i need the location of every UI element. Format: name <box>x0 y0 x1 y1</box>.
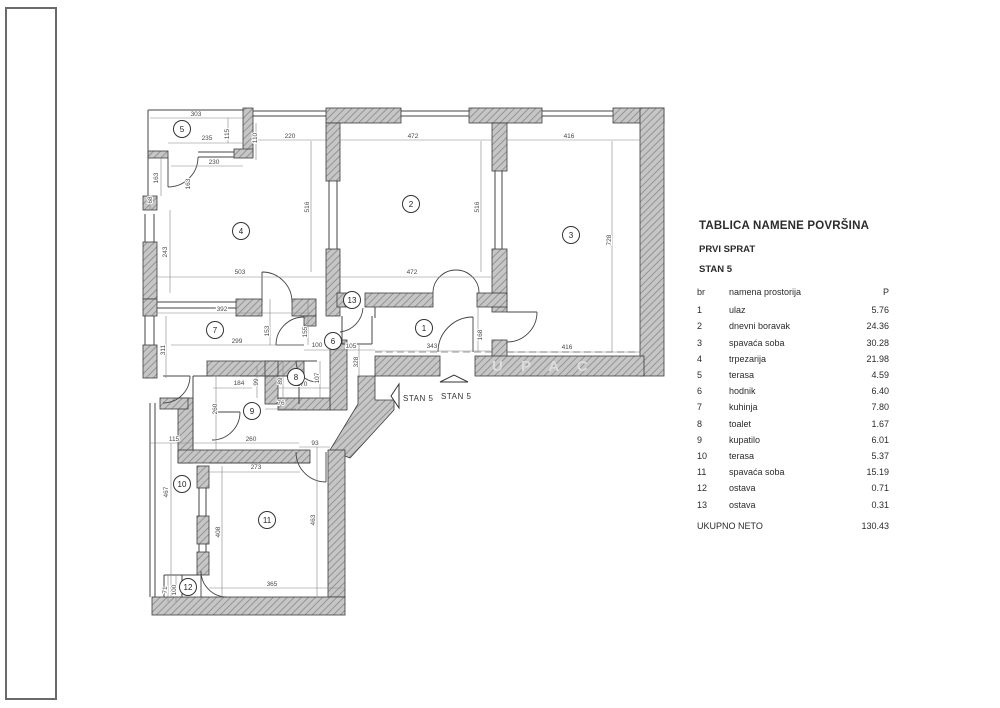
room-number-text: 10 <box>178 480 187 489</box>
dimension-label: 516 <box>474 201 481 212</box>
room-number-text: 12 <box>184 583 193 592</box>
table-row: 1ulaz5.76 <box>697 302 889 318</box>
row-name: ulaz <box>729 302 845 318</box>
row-area: 7.80 <box>845 399 889 415</box>
dimension-label: 168 <box>477 329 484 340</box>
table-row: 5terasa4.59 <box>697 367 889 383</box>
dimension-labels: 3032351151102202301631636824350351647241… <box>147 111 613 595</box>
table-row: 12ostava0.71 <box>697 480 889 496</box>
thin-lines-windows <box>145 110 613 597</box>
row-br: 6 <box>697 383 729 399</box>
row-name: kuhinja <box>729 399 845 415</box>
row-name: ostava <box>729 497 845 513</box>
row-area: 1.67 <box>845 416 889 432</box>
row-area: 5.76 <box>845 302 889 318</box>
dimension-label: 260 <box>212 403 219 414</box>
total-value: 130.43 <box>845 518 889 534</box>
dimension-label: 463 <box>310 514 317 525</box>
dimension-label: 343 <box>427 343 438 350</box>
table-floor-label: PRVI SPRAT <box>699 244 889 255</box>
dimension-label: 99 <box>253 378 260 386</box>
dimension-label: 107 <box>314 372 321 383</box>
dimension-label: 155 <box>302 326 309 337</box>
dimension-label: 220 <box>285 133 296 140</box>
table-row: 4trpezarija21.98 <box>697 351 889 367</box>
dimension-label: 76 <box>277 400 285 407</box>
row-area: 21.98 <box>845 351 889 367</box>
room-number: 10 <box>174 476 191 493</box>
dimension-label: 467 <box>163 486 170 497</box>
row-name: toalet <box>729 416 845 432</box>
dimension-label: 416 <box>564 133 575 140</box>
row-area: 0.71 <box>845 480 889 496</box>
row-name: kupatilo <box>729 432 845 448</box>
room-number: 5 <box>174 121 191 138</box>
room-number-text: 2 <box>409 200 414 209</box>
dimension-label: 68 <box>147 196 154 204</box>
table-row: 3spavaća soba30.28 <box>697 335 889 351</box>
table-row: 11spavaća soba15.19 <box>697 464 889 480</box>
watermark-text: U P A C <box>492 358 595 375</box>
row-br: 12 <box>697 480 729 496</box>
table-row: 8toalet1.67 <box>697 416 889 432</box>
row-area: 15.19 <box>845 464 889 480</box>
dimension-label: 416 <box>562 344 573 351</box>
row-br: 8 <box>697 416 729 432</box>
dimension-label: 163 <box>153 172 160 183</box>
row-br: 10 <box>697 448 729 464</box>
row-br: 4 <box>697 351 729 367</box>
room-number: 2 <box>403 196 420 213</box>
dimension-label: 105 <box>346 343 357 350</box>
dimension-label: 365 <box>267 581 278 588</box>
dimension-label: 516 <box>304 201 311 212</box>
dimension-label: 328 <box>353 356 360 367</box>
row-br: 9 <box>697 432 729 448</box>
area-table: TABLICA NAMENE POVRŠINA PRVI SPRAT STAN … <box>697 220 889 534</box>
row-name: terasa <box>729 367 845 383</box>
row-area: 0.31 <box>845 497 889 513</box>
dimension-label: 243 <box>162 246 169 257</box>
watermark: U P A C <box>492 358 595 375</box>
room-number: 7 <box>207 322 224 339</box>
room-number-text: 9 <box>250 407 255 416</box>
row-name: ostava <box>729 480 845 496</box>
row-br: 13 <box>697 497 729 513</box>
dimension-label: 71 <box>162 586 169 594</box>
room-number-text: 1 <box>422 324 427 333</box>
table-row: 9kupatilo6.01 <box>697 432 889 448</box>
dimension-label: 503 <box>235 269 246 276</box>
row-area: 24.36 <box>845 318 889 334</box>
room-number-text: 7 <box>213 326 218 335</box>
row-name: spavaća soba <box>729 335 845 351</box>
row-br: 5 <box>697 367 729 383</box>
table-row: 6hodnik6.40 <box>697 383 889 399</box>
room-number-text: 11 <box>263 516 272 525</box>
dimension-label: 392 <box>217 306 228 313</box>
table-header-row: br namena prostorija P <box>697 284 889 300</box>
room-number-text: 6 <box>331 337 336 346</box>
entrance-labels: STAN 5STAN 5 <box>391 375 471 408</box>
dimension-label: 472 <box>408 133 419 140</box>
entrance-label: STAN 5 <box>391 384 433 408</box>
dimension-label: 163 <box>185 178 192 189</box>
entrance-label: STAN 5 <box>440 375 471 401</box>
dimension-label: 115 <box>169 436 180 443</box>
dimension-label: 408 <box>215 526 222 537</box>
row-area: 30.28 <box>845 335 889 351</box>
row-br: 2 <box>697 318 729 334</box>
row-br: 11 <box>697 464 729 480</box>
col-header-br: br <box>697 284 729 300</box>
dimension-label: 260 <box>246 436 257 443</box>
row-name: trpezarija <box>729 351 845 367</box>
col-header-name: namena prostorija <box>729 284 845 300</box>
room-number: 8 <box>288 369 305 386</box>
up-arrow-icon <box>440 375 468 382</box>
table-row: 7kuhinja7.80 <box>697 399 889 415</box>
room-number: 12 <box>180 579 197 596</box>
room-number: 9 <box>244 403 261 420</box>
row-area: 4.59 <box>845 367 889 383</box>
entrance-label-text: STAN 5 <box>441 392 471 401</box>
dimension-label: 303 <box>191 111 202 118</box>
row-name: terasa <box>729 448 845 464</box>
row-area: 6.40 <box>845 383 889 399</box>
col-header-area: P <box>845 284 889 300</box>
room-number-text: 13 <box>348 296 357 305</box>
room-number: 4 <box>233 223 250 240</box>
dimension-label: 110 <box>252 132 259 143</box>
room-number-text: 3 <box>569 231 574 240</box>
table-rows: 1ulaz5.762dnevni boravak24.363spavaća so… <box>697 302 889 513</box>
entrance-label-text: STAN 5 <box>403 394 433 403</box>
dimension-label: 311 <box>160 344 167 355</box>
table-title: TABLICA NAMENE POVRŠINA <box>699 220 889 232</box>
dimension-label: 235 <box>202 135 213 142</box>
dimension-label: 728 <box>606 234 613 245</box>
room-number: 13 <box>344 292 361 309</box>
dimension-label: 273 <box>251 464 262 471</box>
dimension-label: 100 <box>312 342 323 349</box>
dimension-label: 472 <box>407 269 418 276</box>
row-name: dnevni boravak <box>729 318 845 334</box>
row-area: 6.01 <box>845 432 889 448</box>
dimension-label: 115 <box>224 128 231 139</box>
row-area: 5.37 <box>845 448 889 464</box>
row-br: 7 <box>697 399 729 415</box>
room-number: 11 <box>259 512 276 529</box>
dimension-label: 89 <box>277 377 284 385</box>
total-label: UKUPNO NETO <box>697 518 845 534</box>
dimension-label: 230 <box>209 159 220 166</box>
room-number-text: 5 <box>180 125 185 134</box>
row-name: hodnik <box>729 383 845 399</box>
room-number-text: 8 <box>294 373 299 382</box>
dimension-label: 100 <box>171 584 178 595</box>
row-br: 1 <box>697 302 729 318</box>
table-row: 13ostava0.31 <box>697 497 889 513</box>
dimension-label: 184 <box>234 380 245 387</box>
row-br: 3 <box>697 335 729 351</box>
row-name: spavaća soba <box>729 464 845 480</box>
table-unit-label: STAN 5 <box>699 264 889 275</box>
room-number-text: 4 <box>239 227 244 236</box>
table-row: 2dnevni boravak24.36 <box>697 318 889 334</box>
dimension-label: 153 <box>264 325 271 336</box>
room-number: 1 <box>416 320 433 337</box>
dimension-label: 93 <box>311 440 319 447</box>
table-total-row: UKUPNO NETO 130.43 <box>697 518 889 534</box>
dimension-label: 299 <box>232 338 243 345</box>
table-row: 10terasa5.37 <box>697 448 889 464</box>
room-number: 6 <box>325 333 342 350</box>
room-number: 3 <box>563 227 580 244</box>
